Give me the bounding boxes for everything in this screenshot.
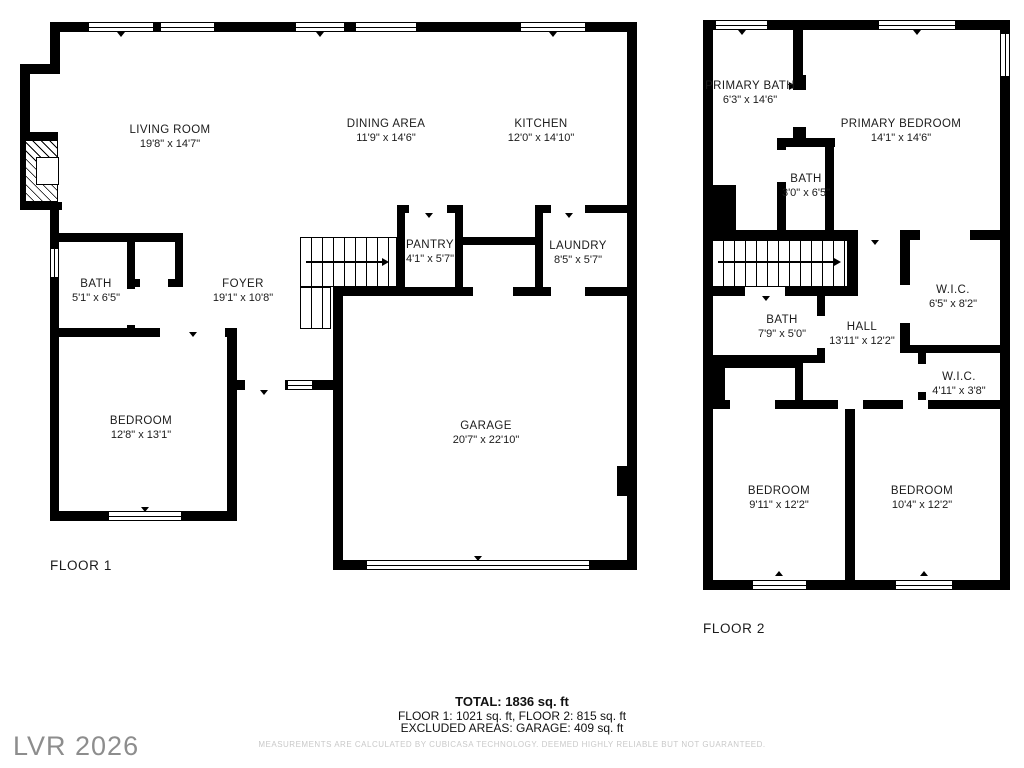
wall xyxy=(627,22,637,570)
door-opening xyxy=(918,364,926,392)
wall xyxy=(703,230,858,240)
door-opening xyxy=(903,400,928,409)
room-label-garage: GARAGE 20'7" x 22'10" xyxy=(453,420,519,446)
wall xyxy=(455,205,463,296)
door-opening xyxy=(745,287,785,296)
room-label-laundry: LAUNDRY 8'5" x 5'7" xyxy=(549,240,607,266)
wall-tick xyxy=(920,571,928,576)
window xyxy=(160,22,215,32)
wall xyxy=(617,466,627,496)
stair-arrow xyxy=(834,258,841,266)
room-label-living-room: LIVING ROOM 19'8" x 14'7" xyxy=(129,124,210,150)
chase-block xyxy=(703,185,736,233)
wall xyxy=(397,205,405,296)
wall-tick xyxy=(117,32,125,37)
window xyxy=(287,380,313,390)
wall xyxy=(455,237,543,245)
total-area-text: TOTAL: 1836 sq. ft xyxy=(0,694,1024,709)
wall xyxy=(725,360,803,368)
garage-door xyxy=(366,560,590,570)
room-label-wic-1: W.I.C. 6'5" x 8'2" xyxy=(929,284,977,310)
window xyxy=(295,22,345,32)
wall xyxy=(333,287,343,570)
room-label-bedroom: BEDROOM 12'8" x 13'1" xyxy=(110,415,172,441)
door-opening xyxy=(473,287,513,296)
door-opening xyxy=(817,316,825,348)
door-marker xyxy=(565,213,573,218)
wall-tick xyxy=(141,507,149,512)
wall xyxy=(227,328,237,520)
wall-tick xyxy=(913,30,921,35)
door-marker xyxy=(762,296,770,301)
door-opening xyxy=(730,400,775,409)
disclaimer-text: MEASUREMENTS ARE CALCULATED BY CUBICASA … xyxy=(0,740,1024,749)
window xyxy=(1000,33,1010,77)
door-opening xyxy=(409,205,447,213)
window xyxy=(752,580,807,590)
room-label-bath: BATH 5'1" x 6'5" xyxy=(72,278,120,304)
staircase xyxy=(300,287,331,329)
room-label-foyer: FOYER 19'1" x 10'8" xyxy=(213,278,273,304)
door-marker xyxy=(189,332,197,337)
room-label-dining-area: DINING AREA 11'9" x 14'6" xyxy=(347,118,426,144)
fireplace xyxy=(25,140,58,202)
door-marker xyxy=(260,390,268,395)
stair-direction-line xyxy=(306,261,384,263)
room-label-primary-bedroom: PRIMARY BEDROOM 14'1" x 14'6" xyxy=(841,118,962,144)
room-label-kitchen: KITCHEN 12'0" x 14'10" xyxy=(508,118,574,144)
wall-tick xyxy=(549,32,557,37)
wall-tick xyxy=(316,32,324,37)
wall xyxy=(1000,20,1010,590)
door-marker xyxy=(425,213,433,218)
door-opening xyxy=(900,285,910,323)
fireplace-box xyxy=(36,157,59,185)
window xyxy=(355,22,417,32)
floor2-label: FLOOR 2 xyxy=(703,621,765,636)
window xyxy=(895,580,953,590)
wall-tick xyxy=(474,556,482,561)
wall xyxy=(50,332,59,520)
wall xyxy=(703,580,1010,590)
window xyxy=(88,22,154,32)
door-opening xyxy=(838,400,863,409)
door-opening xyxy=(551,287,585,296)
wall xyxy=(20,132,58,140)
wall xyxy=(50,328,160,337)
wall xyxy=(50,233,183,242)
staircase xyxy=(712,240,848,287)
excluded-areas-text: EXCLUDED AREAS: GARAGE: 409 sq. ft xyxy=(0,721,1024,735)
window xyxy=(108,511,182,521)
wall xyxy=(20,64,30,140)
wall xyxy=(845,409,855,580)
door-opening xyxy=(920,230,970,240)
room-label-pantry: PANTRY 4'1" x 5'7" xyxy=(406,239,454,265)
wall-tick xyxy=(775,571,783,576)
window xyxy=(878,20,956,30)
room-label-hall: HALL 13'11" x 12'2" xyxy=(829,321,895,347)
window xyxy=(520,22,586,32)
door-opening xyxy=(140,279,168,287)
room-label-bedroom-2: BEDROOM 10'4" x 12'2" xyxy=(891,485,953,511)
stair-arrow xyxy=(382,258,389,266)
window xyxy=(715,20,768,30)
room-label-primary-bath: PRIMARY BATH 6'3" x 14'6" xyxy=(705,80,795,106)
room-label-wic-2: W.I.C. 4'11" x 3'8" xyxy=(932,371,985,397)
wall xyxy=(900,345,1000,353)
door-marker xyxy=(871,240,879,245)
wall xyxy=(535,205,543,296)
window xyxy=(50,248,59,278)
room-label-bath-hall: BATH 7'9" x 5'0" xyxy=(758,314,806,340)
wall-tick xyxy=(738,30,746,35)
floor1-label: FLOOR 1 xyxy=(50,558,112,573)
stair-direction-line xyxy=(718,261,836,263)
watermark: LVR 2026 xyxy=(13,731,139,762)
room-label-bath-upper: BATH 3'0" x 6'5" xyxy=(782,173,830,199)
door-opening xyxy=(127,289,135,325)
floor-plan-canvas: LIVING ROOM 19'8" x 14'7" DINING AREA 11… xyxy=(0,0,1024,768)
room-label-bedroom-1: BEDROOM 9'11" x 12'2" xyxy=(748,485,810,511)
door-opening xyxy=(245,380,285,390)
door-opening xyxy=(551,205,585,213)
